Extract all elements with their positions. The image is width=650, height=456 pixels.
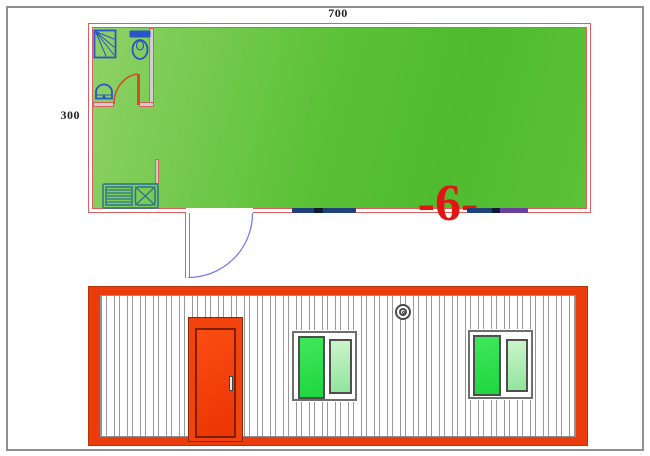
unit-number-label: -6- — [348, 178, 548, 230]
door-handle-icon — [229, 376, 233, 391]
round-vent-icon — [395, 304, 411, 320]
plan-width-dimension: 700 — [88, 6, 588, 21]
drawing-sheet: 700 300 — [0, 0, 650, 456]
window-pane-left — [473, 335, 501, 396]
plan-height-dimension: 300 — [26, 108, 80, 123]
plan-window-right — [467, 208, 528, 213]
bathroom-door-arc-icon — [114, 74, 138, 104]
washbasin-icon — [96, 85, 112, 99]
door-panel — [195, 328, 236, 438]
kitchen-sink-icon — [103, 184, 158, 208]
vent-core — [402, 311, 405, 314]
entry-door-leaf — [185, 213, 190, 278]
shower-icon — [95, 31, 116, 58]
front-elevation — [88, 286, 588, 446]
elevation-window-left — [292, 331, 357, 401]
window-pane-right — [506, 339, 528, 392]
elevation-entry-door — [188, 317, 243, 442]
window-pane-right — [329, 339, 352, 394]
plan-floor: -6- — [92, 27, 587, 209]
plan-window-left — [292, 208, 356, 213]
entry-door-opening — [186, 208, 253, 214]
toilet-icon — [130, 31, 150, 59]
vent-ring — [399, 308, 407, 316]
elevation-window-right — [468, 330, 533, 399]
floor-plan: -6- — [88, 23, 591, 213]
window-pane-left — [298, 336, 325, 399]
